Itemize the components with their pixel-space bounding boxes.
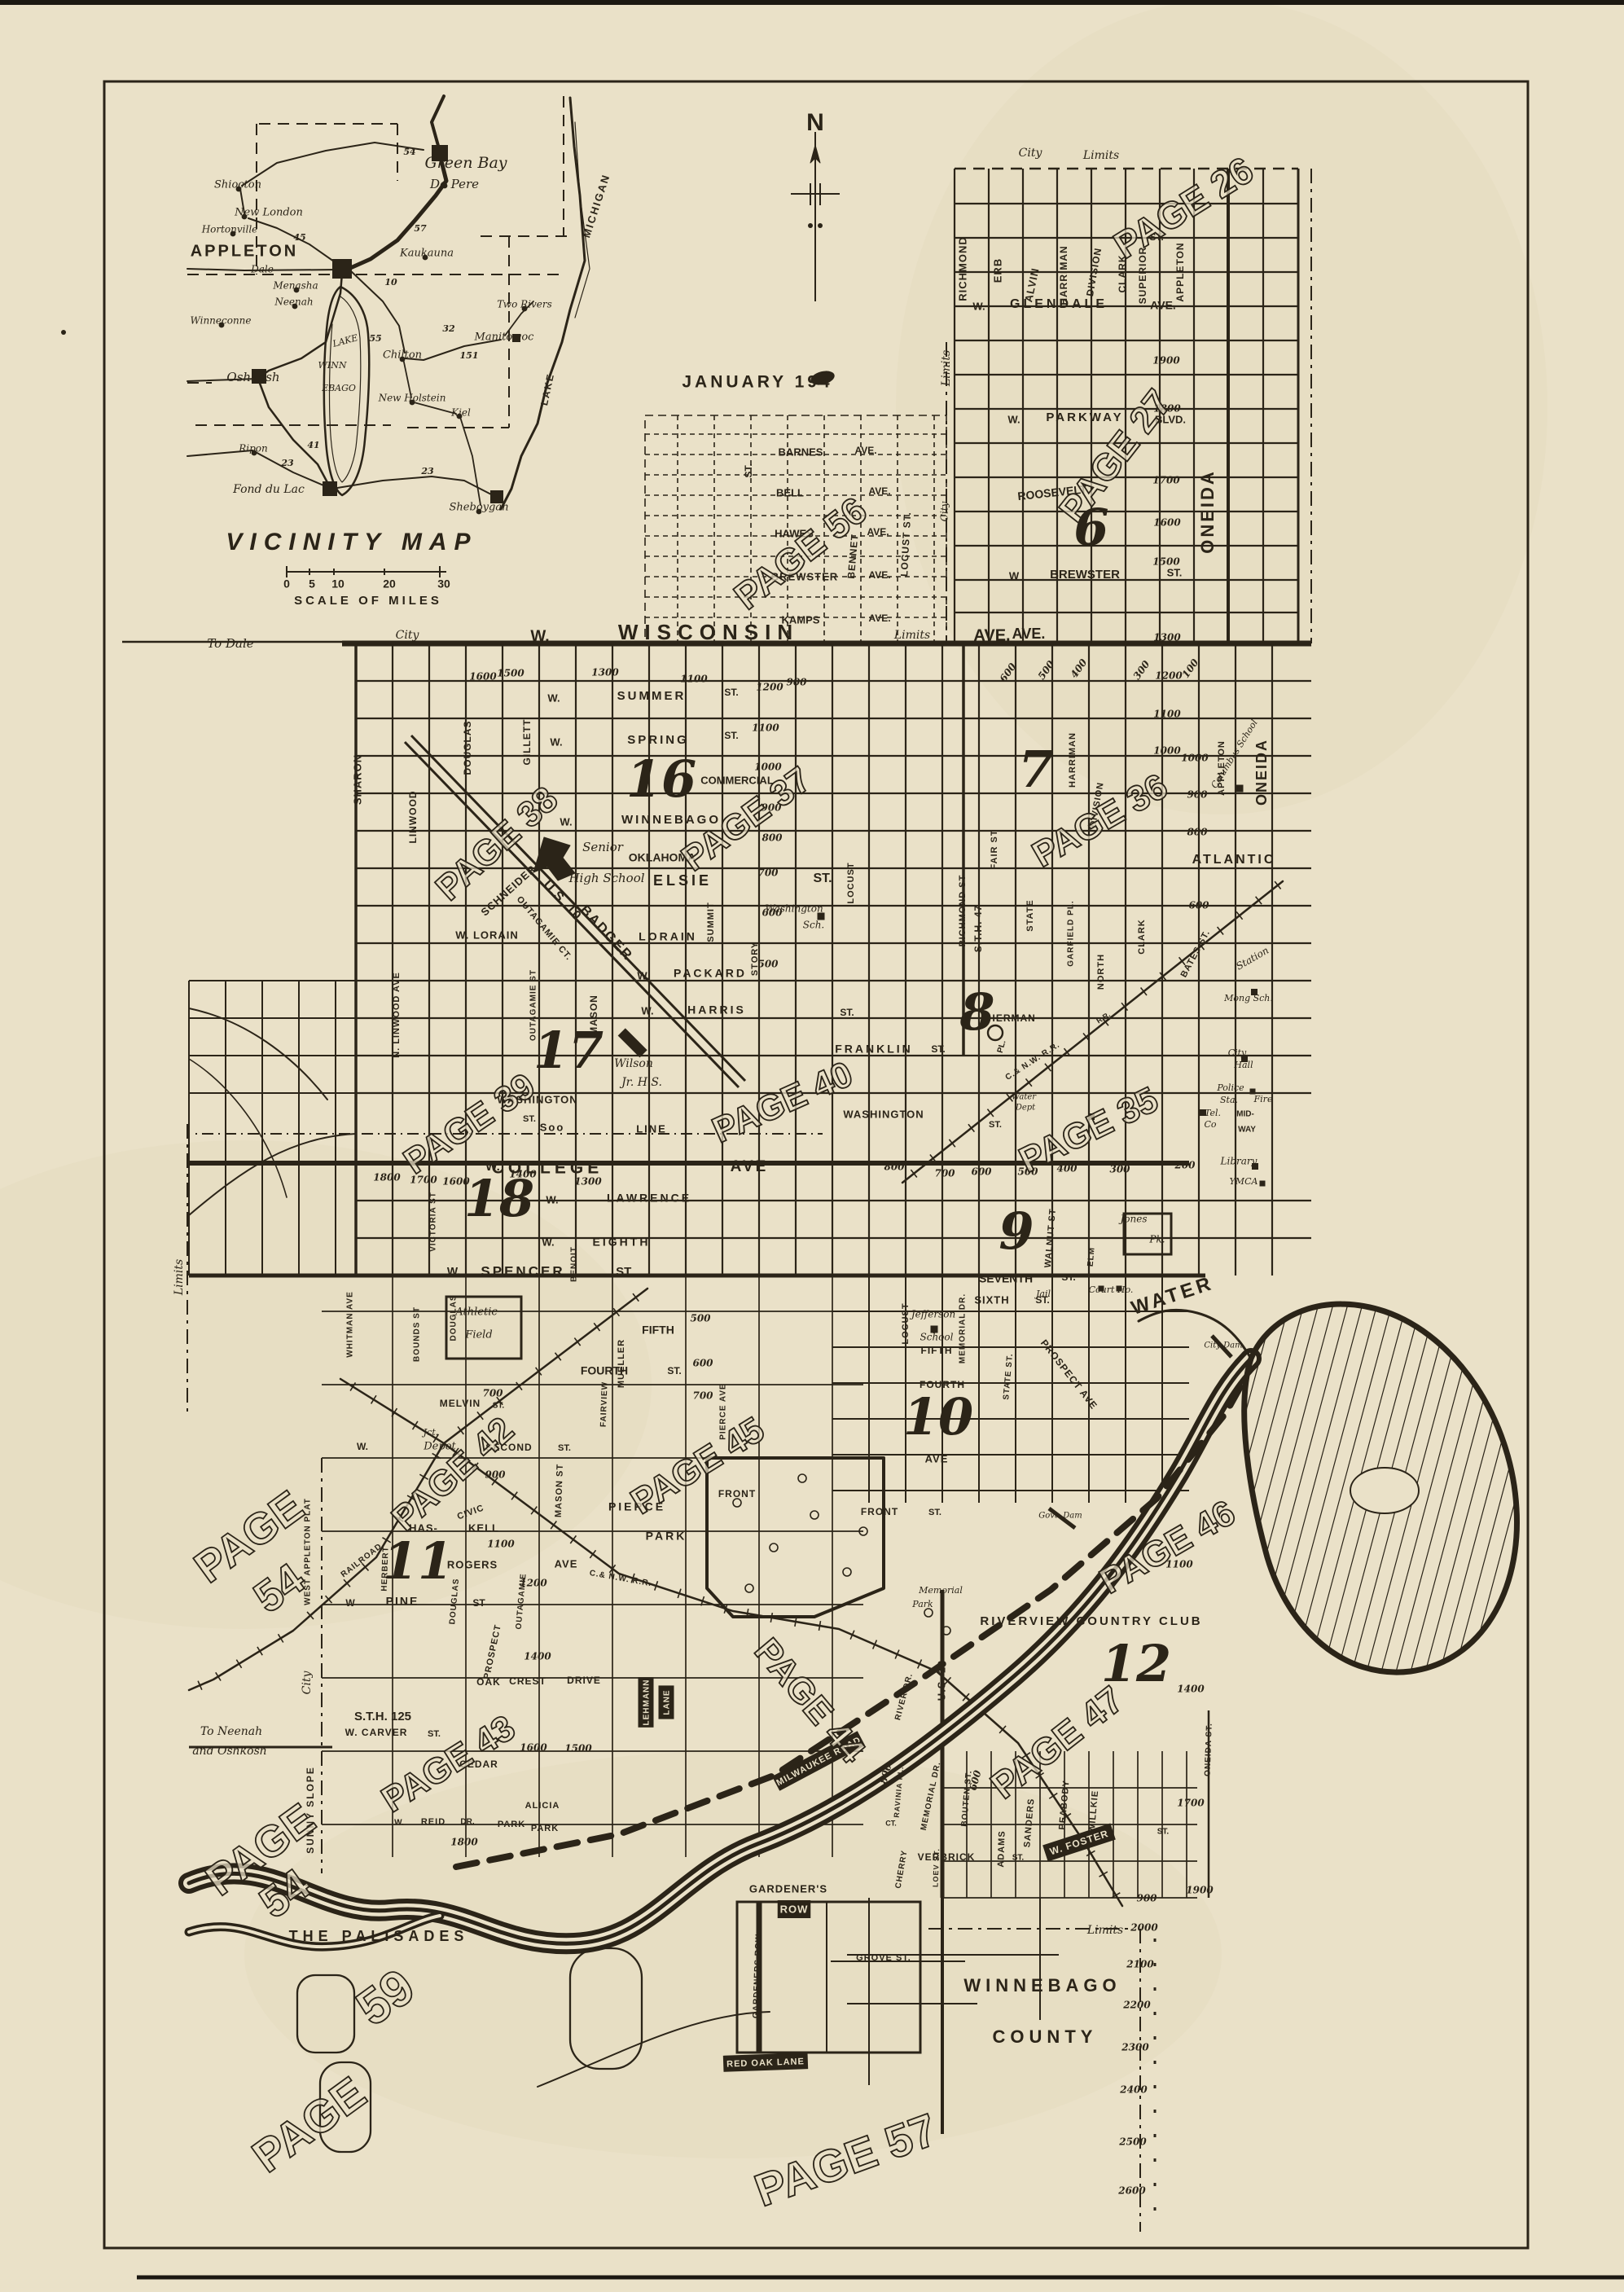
street-st: ST. — [667, 1365, 681, 1377]
route-10: 10 — [384, 277, 397, 288]
label-to-neenah: To Neenah — [200, 1725, 262, 1738]
street-st: ST. — [724, 687, 738, 698]
vicinity-new-london: New London — [234, 207, 303, 219]
street-bell: BELL — [776, 486, 804, 498]
vicinity-kaukauna: Kaukauna — [399, 248, 454, 260]
vicinity-shiocton: Shiocton — [214, 179, 261, 191]
street-front: FRONT — [861, 1506, 898, 1517]
route-41: 41 — [307, 440, 319, 450]
street-prospect-ave: PROSPECT AVE — [1038, 1337, 1099, 1412]
svg-text:ROW: ROW — [780, 1903, 809, 1915]
street-erb: ERB — [991, 258, 1003, 283]
block-700: 700 — [757, 867, 779, 879]
block-2400: 2400 — [1119, 2084, 1148, 2096]
street-w: W — [345, 1597, 355, 1609]
block-1300: 1300 — [591, 667, 619, 678]
street-ave: AVE. — [867, 526, 889, 538]
street-richmond-st: RICHMOND ST — [958, 875, 968, 947]
route-57: 57 — [414, 223, 427, 234]
street-st: ST. — [428, 1729, 441, 1739]
street-richmond: RICHMOND — [956, 236, 968, 301]
page-page: PAGE — [243, 2066, 375, 2182]
block-1100: 1100 — [752, 722, 779, 734]
vicinity-lake: LAKE — [331, 332, 359, 349]
route-54: 54 — [403, 147, 415, 157]
street-fair-st: FAIR ST — [990, 829, 999, 869]
block-2600: 2600 — [1117, 2185, 1146, 2197]
street-ave: AVE. — [868, 485, 890, 497]
block-1100: 1100 — [680, 674, 708, 685]
street-n-linwood-ave: N. LINWOOD AVE — [392, 972, 402, 1058]
block-2000: 2000 — [1130, 1922, 1158, 1934]
street-w-carver: W. CARVER — [345, 1727, 408, 1738]
street-w: W. — [560, 815, 572, 828]
street-bates-st: BATES ST. — [1178, 929, 1212, 980]
label-limits: Limits — [1082, 149, 1119, 162]
street-locust: LOCUST — [901, 1302, 911, 1344]
vicinity-title: VICINITY MAP — [226, 529, 477, 555]
route-45: 45 — [293, 232, 305, 243]
street-harris: HARRIS — [687, 1003, 746, 1016]
label-city: City — [1019, 147, 1043, 160]
street-whitman-ave: WHITMAN AVE — [346, 1291, 355, 1358]
street-melvin: MELVIN — [440, 1398, 481, 1409]
vicinity-manitowoc: Manitowoc — [474, 332, 535, 344]
paper-texture — [0, 0, 1624, 2277]
street-harriman: HARRIMAN — [1068, 732, 1078, 788]
block-900: 900 — [1136, 1893, 1157, 1904]
street-w: W. — [637, 969, 649, 981]
block-700: 700 — [692, 1390, 713, 1402]
appleton-plat-index-sheet: 05102030Green BayDe PereShioctonNew Lond… — [0, 0, 1624, 2292]
street-reid: REID — [421, 1817, 446, 1827]
vicinity-lake: LAKE — [538, 371, 556, 406]
label-jr-h-s: Jr. H.S. — [619, 1076, 662, 1089]
label-jct: Jct. — [422, 1427, 439, 1438]
map-render-root: 05102030Green BayDe PereShioctonNew Lond… — [0, 0, 1624, 2277]
label-tel: Tel. — [1205, 1108, 1221, 1118]
vicinity-green-bay: Green Bay — [424, 154, 507, 172]
block-800: 800 — [884, 1161, 905, 1173]
street-pine: PINE — [386, 1595, 419, 1608]
boxed-label-row: ROW — [778, 1900, 811, 1918]
street-clark: CLARK — [1137, 919, 1147, 955]
block-1900: 1900 — [1152, 355, 1180, 367]
district-12: 12 — [1101, 1634, 1171, 1693]
street-w: W. — [530, 627, 549, 645]
vicinity-map: 05102030Green BayDe PereShioctonNew Lond… — [187, 96, 612, 591]
street-eighth: EIGHTH — [593, 1236, 651, 1249]
block-1900: 1900 — [1186, 1885, 1214, 1896]
street-state-st: STATE ST. — [1002, 1353, 1015, 1400]
vicinity-winneconne: Winneconne — [190, 315, 251, 327]
label-pk: Pk. — [1148, 1234, 1165, 1245]
street-park: PARK — [646, 1530, 687, 1543]
street-wisconsin: WISCONSIN — [618, 620, 799, 644]
street-seventh: SEVENTH — [979, 1272, 1033, 1285]
street-ave: AVE — [731, 1158, 769, 1175]
street-oneida: ONEIDA — [1197, 469, 1218, 554]
block-600: 600 — [692, 1358, 713, 1369]
street-ave: AVE. — [868, 613, 890, 624]
route-23: 23 — [420, 466, 434, 476]
street-drive: DRIVE — [567, 1675, 601, 1686]
label-city: City — [301, 1671, 314, 1695]
block-1200: 1200 — [1155, 670, 1183, 682]
block-900: 900 — [1187, 789, 1208, 801]
block-900: 900 — [786, 677, 807, 688]
label-hall: Hall — [1233, 1060, 1253, 1070]
label-co: Co — [1204, 1119, 1216, 1130]
street-st: ST. — [1012, 1854, 1025, 1863]
label-sch: Sch. — [803, 920, 824, 931]
street-st: ST. — [840, 1007, 854, 1018]
street-atlantic: ATLANTIC — [1192, 853, 1276, 867]
block-1100: 1100 — [1153, 709, 1181, 720]
label-jail: Jail — [1034, 1289, 1051, 1299]
label-field: Field — [464, 1329, 492, 1341]
street-parkway: PARKWAY — [1046, 411, 1123, 424]
street-north: NORTH — [1096, 954, 1106, 990]
block-1600: 1600 — [469, 671, 497, 683]
district-6: 6 — [1073, 498, 1108, 557]
vicinity-appleton: APPLETON — [191, 242, 299, 260]
street-fifth: FIFTH — [921, 1345, 953, 1356]
label-jones: Jones — [1117, 1214, 1147, 1225]
label-jefferson: Jefferson — [909, 1309, 955, 1320]
block-1300: 1300 — [1153, 632, 1181, 643]
street-dr: DR. — [460, 1818, 474, 1827]
street-ave: AVE. — [973, 626, 1010, 644]
street-ave: AVE — [555, 1557, 578, 1570]
street-w: W — [1009, 569, 1020, 582]
street-appleton: APPLETON — [1174, 242, 1186, 301]
street-packard: PACKARD — [674, 967, 747, 980]
street-harriman: HARRIMAN — [1058, 245, 1069, 305]
scale-tick-30: 30 — [437, 577, 450, 591]
block-2100: 2100 — [1126, 1959, 1154, 1970]
block-300: 300 — [1109, 1164, 1130, 1175]
label-dept: Dept — [1015, 1104, 1036, 1113]
street-washington: WASHINGTON — [843, 1108, 924, 1120]
block-1400: 1400 — [1177, 1684, 1205, 1695]
street-kell: KELL — [468, 1521, 499, 1534]
street-park: PARK — [531, 1824, 559, 1833]
street-county: COUNTY — [993, 2026, 1098, 2047]
street-the-palisades: THE PALISADES — [289, 1928, 469, 1944]
street-st: ST. — [743, 463, 754, 477]
vicinity-two-rivers: Two Rivers — [497, 299, 552, 310]
vicinity-de-pere: De Pere — [429, 177, 479, 191]
district-7: 7 — [1018, 740, 1053, 799]
street-c-n-w-r-r: C.& N.W. R.R. — [589, 1569, 652, 1588]
street-st: ST. — [558, 1443, 571, 1453]
street-benoit: BENOIT — [570, 1246, 579, 1282]
street-ave: AVE. — [1150, 299, 1176, 312]
label-city: City — [939, 501, 950, 521]
block-1500: 1500 — [1152, 556, 1180, 568]
street-locust: LOCUST — [846, 862, 856, 903]
block-1000: 1000 — [1181, 753, 1209, 764]
label-athletic: Athletic — [454, 1306, 498, 1319]
block-2200: 2200 — [1122, 2000, 1151, 2011]
street-st: ST. — [813, 872, 832, 885]
street-sixth: SIXTH — [974, 1293, 1009, 1306]
street-st: ST. — [724, 730, 738, 741]
svg-text:LANE: LANE — [663, 1689, 672, 1715]
block-1500: 1500 — [497, 668, 525, 679]
vicinity-hortonville: Hortonville — [201, 224, 258, 235]
scale-tick-5: 5 — [309, 577, 315, 591]
label-police: Police — [1216, 1082, 1244, 1093]
block-2300: 2300 — [1121, 2042, 1149, 2053]
label-to-dale: To Dale — [207, 636, 253, 651]
label-wilson: Wilson — [614, 1057, 653, 1070]
street-adams: ADAMS — [996, 1830, 1007, 1868]
street-st: ST. — [928, 1508, 941, 1517]
street-pl: PL. — [996, 1039, 1008, 1054]
label-park: Park — [911, 1599, 933, 1609]
route-151: 151 — [460, 350, 479, 361]
street-st: ST. — [523, 1114, 536, 1124]
block-1600: 1600 — [520, 1742, 547, 1754]
street-oneida-st: ONEIDA ST. — [1203, 1723, 1214, 1776]
street-w: W. — [542, 1236, 554, 1248]
street-bounds-st: BOUNDS ST — [413, 1306, 422, 1362]
boxed-label-lehmann: LEHMANN — [639, 1677, 654, 1728]
compass-n-label: N — [806, 109, 824, 136]
street-victoria-st: VICTORIA ST — [429, 1192, 438, 1252]
vicinity-new-holstein: New Holstein — [378, 393, 446, 404]
street-oneida: ONEIDA — [1253, 739, 1270, 806]
vicinity-fond-du-lac: Fond du Lac — [232, 483, 305, 496]
appleton-plat-index-map: 05102030Green BayDe PereShioctonNew Lond… — [0, 0, 1624, 2292]
label-limits: Limits — [893, 629, 930, 642]
label-ymca: YMCA — [1230, 1176, 1258, 1187]
scale-tick-10: 10 — [331, 577, 345, 591]
compass-rose — [791, 132, 840, 387]
map-date-label: JANUARY 194 — [682, 373, 832, 392]
block-1700: 1700 — [1177, 1798, 1205, 1809]
street-front: FRONT — [718, 1488, 756, 1499]
block-900: 900 — [485, 1469, 506, 1481]
block-1400: 1400 — [524, 1651, 551, 1662]
block-1800: 1800 — [450, 1837, 478, 1848]
street-st: ST. — [616, 1265, 634, 1279]
street-w: W. — [1007, 413, 1020, 425]
street-ave: AVE. — [854, 445, 876, 456]
label-limits: Limits — [173, 1259, 186, 1296]
label-senior: Senior — [582, 840, 624, 854]
district-9: 9 — [999, 1201, 1034, 1261]
street-prospect: PROSPECT — [482, 1623, 503, 1680]
street-w: W. — [447, 1265, 460, 1278]
street-locust-st: LOCUST ST. — [898, 512, 913, 577]
block-700: 700 — [482, 1388, 503, 1399]
street-fifth: FIFTH — [642, 1324, 674, 1337]
vicinity-ripon: Ripon — [238, 443, 268, 454]
vicinity-menasha: Menasha — [272, 280, 318, 292]
street-u-s-10: U.S. 10 — [935, 1660, 947, 1701]
block-600: 600 — [762, 907, 783, 919]
street-riverview-country-club: RIVERVIEW COUNTRY CLUB — [980, 1614, 1202, 1628]
district-11: 11 — [383, 1531, 453, 1591]
street-franklin: FRANKLIN — [835, 1043, 913, 1056]
block-600: 600 — [1188, 900, 1209, 911]
street-ave: AVE. — [868, 569, 890, 581]
district-16: 16 — [626, 749, 696, 809]
street-brewster: BREWSTER — [1050, 568, 1120, 582]
vicinity-scale-title: SCALE OF MILES — [294, 594, 442, 608]
street-barnes: BARNES — [779, 446, 823, 458]
street-lorain: LORAIN — [639, 930, 697, 943]
street-s-t-h-125: S.T.H. 125 — [354, 1710, 411, 1723]
street-w: W. — [546, 1193, 558, 1205]
street-w: W. — [547, 692, 560, 704]
scale-tick-0: 0 — [283, 577, 290, 591]
svg-text:LEHMANN: LEHMANN — [643, 1679, 652, 1726]
block-2500: 2500 — [1118, 2136, 1147, 2148]
street-mid: MID- — [1236, 1110, 1254, 1119]
page-page-40: PAGE 40 — [706, 1054, 858, 1151]
street-water: WATER — [1129, 1272, 1217, 1319]
label-sta: Sta. — [1220, 1095, 1238, 1105]
street-alicia: ALICIA — [525, 1801, 560, 1811]
vicinity-ebago: EBAGO — [321, 383, 356, 393]
street-crest: CREST — [509, 1675, 546, 1687]
street-st: ST — [472, 1597, 485, 1609]
label-city: City — [396, 629, 420, 642]
vicinity-michigan: MICHIGAN — [580, 172, 612, 239]
street-sharon: SHARON — [351, 754, 363, 805]
district-17: 17 — [533, 1021, 604, 1080]
street-park: PARK — [498, 1820, 525, 1829]
label-mong-sch: Mong Sch. — [1223, 993, 1273, 1003]
block-1600: 1600 — [1153, 517, 1181, 529]
route-32: 32 — [442, 323, 455, 334]
street-douglas: DOUGLAS — [462, 721, 473, 775]
label-city-dam: City Dam — [1204, 1341, 1242, 1350]
block-1200: 1200 — [520, 1578, 547, 1589]
street-ave: AVE — [925, 1452, 949, 1464]
label-limits: Limits — [940, 350, 953, 387]
street-fairview: FAIRVIEW — [599, 1381, 610, 1428]
vicinity-kiel: Kiel — [450, 407, 471, 419]
street-mason-st: MASON ST — [554, 1464, 565, 1517]
district-10: 10 — [903, 1387, 973, 1447]
street-spencer: SPENCER — [481, 1263, 564, 1279]
street-ct: CT. — [885, 1819, 897, 1827]
block-800: 800 — [1187, 827, 1208, 838]
street-summer: SUMMER — [617, 689, 687, 703]
vicinity-winn: WINN — [318, 360, 347, 371]
block-700: 700 — [934, 1168, 955, 1179]
street-w-lorain: W. LORAIN — [455, 929, 519, 941]
street-state: STATE — [1025, 899, 1035, 931]
block-600: 600 — [971, 1166, 992, 1178]
block-200: 200 — [1174, 1160, 1196, 1171]
street-way: WAY — [1238, 1126, 1256, 1135]
street-st: ST. — [989, 1120, 1002, 1130]
street-rogers: ROGERS — [447, 1558, 498, 1570]
block-1200: 1200 — [756, 682, 783, 693]
street-gardener-s: GARDENER'S — [749, 1882, 827, 1895]
route-55: 55 — [369, 333, 381, 344]
street-st: ST. — [1167, 566, 1183, 578]
label-school: School — [920, 1332, 954, 1343]
vicinity-sheboygan: Sheboygan — [450, 502, 509, 514]
route-23: 23 — [280, 458, 294, 468]
street-mueller: MUELLER — [617, 1339, 626, 1388]
label-water: Water — [1012, 1093, 1037, 1102]
street-gillett: GILLETT — [521, 719, 533, 766]
street-st: ST. — [1157, 1828, 1170, 1837]
street-lawrence: LAWRENCE — [607, 1192, 691, 1205]
street-badger: BADGER — [577, 902, 636, 964]
street-w: W. — [641, 1004, 653, 1016]
label-high-school: High School — [568, 871, 644, 885]
street-s-t-h-47: S.T.H. 47 — [972, 905, 984, 952]
block-1700: 1700 — [1152, 475, 1180, 486]
block-500: 500 — [690, 1313, 711, 1324]
street-spring: SPRING — [627, 733, 689, 747]
district-18: 18 — [464, 1169, 534, 1228]
boxed-label-red-oak-lane: RED OAK LANE — [723, 2053, 808, 2072]
street-memorial-dr: MEMORIAL DR. — [959, 1293, 968, 1363]
street-garfield-pl: GARFIELD PL. — [1067, 900, 1076, 966]
label-library: Library — [1220, 1156, 1258, 1167]
block-800: 800 — [762, 832, 783, 844]
vicinity-chilton: Chilton — [383, 349, 422, 362]
label-station: Station — [1234, 945, 1271, 973]
street-ave: AVE. — [1012, 626, 1046, 642]
boxed-label-lane: LANE — [659, 1685, 674, 1719]
street-verbrick: VERBRICK — [918, 1851, 976, 1863]
page-page-45: PAGE 45 — [624, 1409, 771, 1521]
street-st: ST. — [931, 1043, 945, 1055]
street-w: W. — [357, 1441, 368, 1452]
street-elm: ELM — [1086, 1247, 1097, 1267]
district-8: 8 — [959, 982, 994, 1042]
block-500: 500 — [757, 959, 779, 970]
label-and-oshkosh: and Oshkosh — [192, 1745, 267, 1758]
street-line: LINE — [636, 1122, 667, 1135]
block-1100: 1100 — [487, 1539, 515, 1550]
label-memorial: Memorial — [918, 1585, 963, 1596]
street-st: ST. — [1061, 1271, 1075, 1283]
label-govt-dam: Govt. Dam — [1038, 1512, 1082, 1521]
scale-tick-20: 20 — [383, 577, 396, 591]
block-1300: 1300 — [574, 1176, 602, 1188]
vicinity-neenah: Neenah — [274, 296, 313, 308]
street-winnebago: WINNEBAGO — [963, 1975, 1121, 1996]
vicinity-dale: Dale — [250, 264, 274, 275]
street-linwood: LINWOOD — [407, 791, 419, 844]
street-w: W. — [972, 300, 985, 312]
block-1800: 1800 — [373, 1172, 401, 1183]
static-labels: N JANUARY 194 VICINITY MAP SCALE OF MILE… — [226, 109, 832, 608]
label-city: City — [1228, 1047, 1247, 1058]
block-1500: 1500 — [564, 1743, 592, 1754]
label-fire: Fire — [1253, 1094, 1273, 1104]
label-limits: Limits — [1086, 1924, 1123, 1937]
street-w: W. — [550, 735, 562, 748]
street-loev-st: LOEV ST. — [932, 1848, 941, 1887]
block-1000: 1000 — [1153, 745, 1181, 757]
street-grove-st: GROVE ST. — [856, 1953, 911, 1963]
street-soo: Soo — [540, 1121, 565, 1133]
street-summit: SUMMIT — [706, 902, 716, 942]
